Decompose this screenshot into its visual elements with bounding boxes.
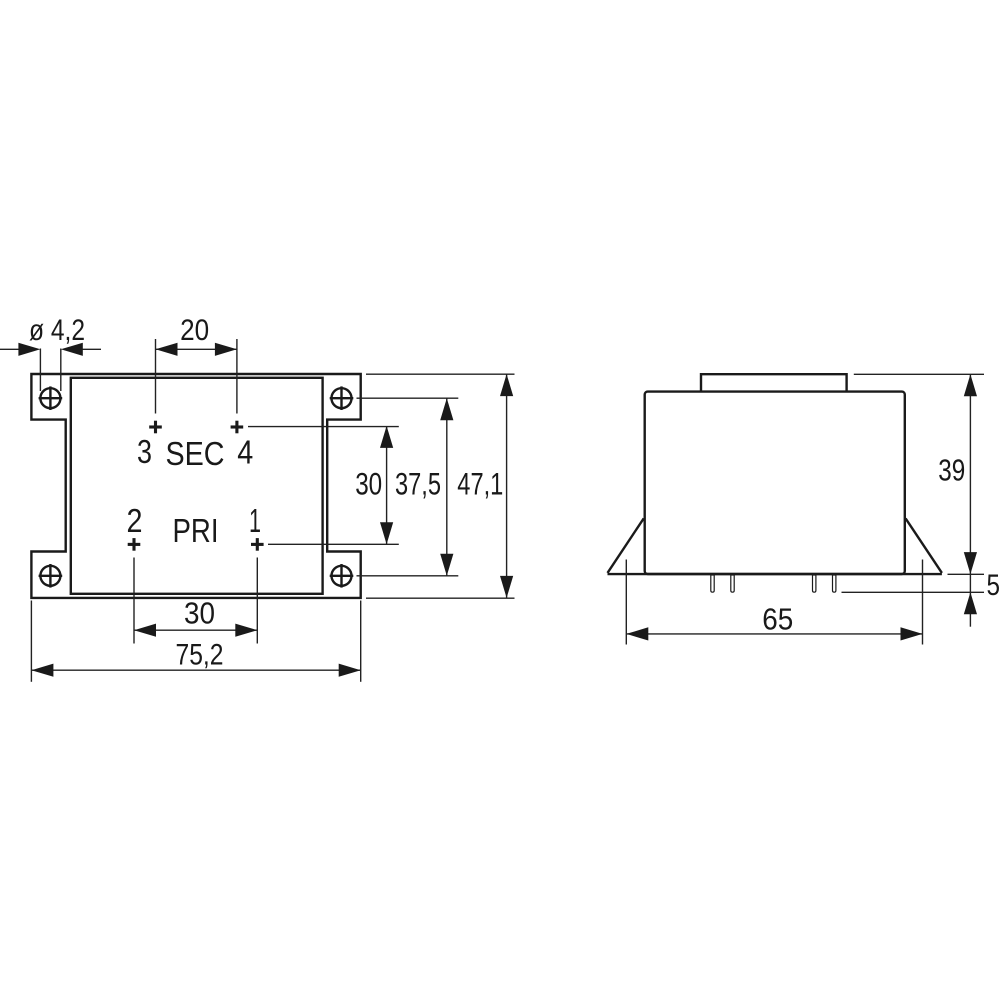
- svg-text:20: 20: [180, 314, 209, 347]
- svg-text:47,1: 47,1: [457, 466, 503, 502]
- svg-text:3: 3: [137, 433, 152, 470]
- svg-text:PRI: PRI: [173, 512, 219, 549]
- svg-text:4: 4: [237, 434, 253, 471]
- svg-text:1: 1: [249, 502, 261, 539]
- svg-text:37,5: 37,5: [395, 466, 441, 502]
- svg-text:75,2: 75,2: [176, 638, 224, 671]
- svg-text:39: 39: [938, 452, 965, 487]
- svg-text:5: 5: [986, 569, 1000, 602]
- svg-text:2: 2: [127, 502, 143, 539]
- svg-text:ø 4,2: ø 4,2: [29, 314, 85, 347]
- svg-text:30: 30: [355, 466, 382, 502]
- svg-text:SEC: SEC: [166, 435, 225, 472]
- svg-text:30: 30: [184, 597, 215, 631]
- svg-text:65: 65: [762, 601, 793, 636]
